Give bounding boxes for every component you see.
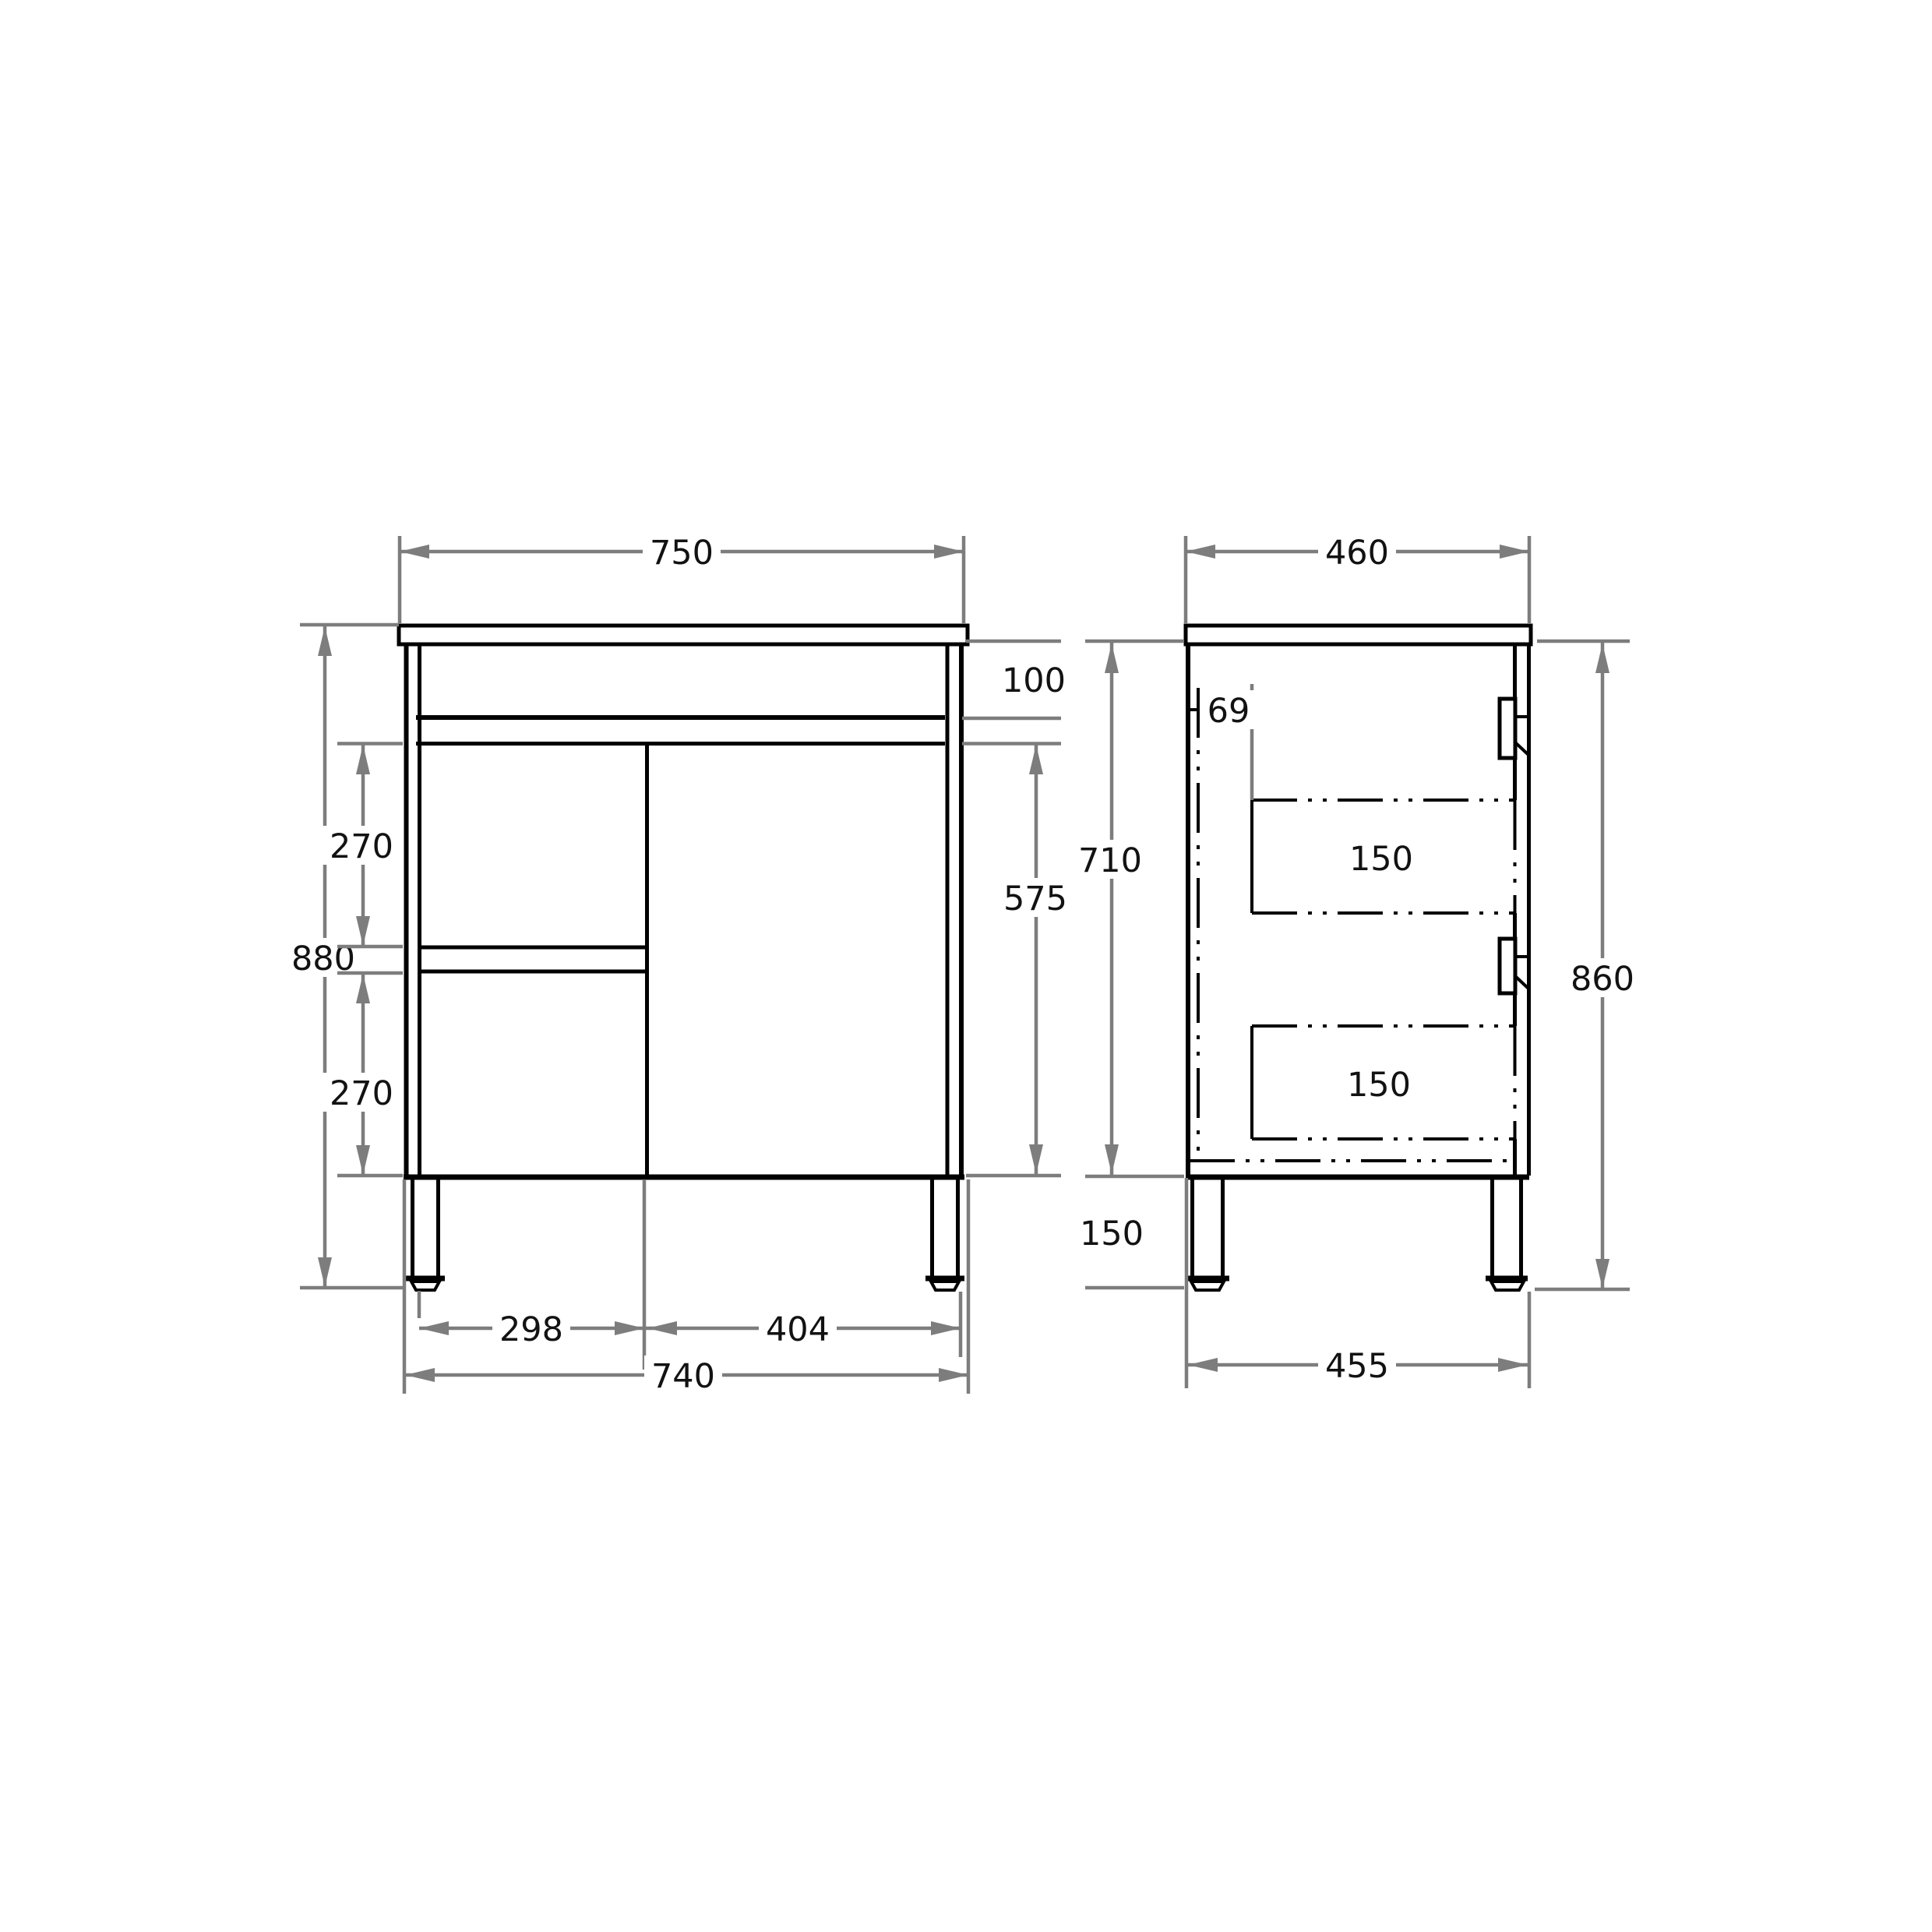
dim-label-upper-drawer-depth: 150 (1349, 840, 1413, 879)
arrow-down (1029, 1144, 1043, 1174)
arrow-right (615, 1321, 644, 1335)
svg-text:100: 100 (1002, 661, 1066, 700)
arrow-right (1500, 545, 1529, 559)
arrow-left (1186, 545, 1215, 559)
svg-text:270: 270 (330, 1074, 393, 1113)
svg-text:298: 298 (499, 1310, 563, 1349)
side-right-leg (1486, 1179, 1528, 1290)
svg-text:460: 460 (1325, 534, 1389, 573)
dim-label-lower-drawer-depth: 150 (1347, 1066, 1411, 1105)
arrow-up (1029, 745, 1043, 774)
svg-text:455: 455 (1325, 1347, 1389, 1386)
dim-label-front-drawer-bank-width: 298 (492, 1309, 570, 1349)
lower-hinge (1500, 939, 1528, 993)
front-view-outline (399, 626, 968, 1290)
right-foot (931, 1282, 959, 1290)
side-countertop (1186, 626, 1531, 644)
side-view: 460 69 710 150 150 (1071, 532, 1641, 1388)
arrow-down (356, 1145, 370, 1175)
dim-label-front-door-width: 404 (759, 1309, 837, 1349)
svg-text:575: 575 (1003, 880, 1067, 918)
svg-text:270: 270 (330, 827, 393, 866)
arrow-up (1595, 643, 1609, 673)
arrow-left (647, 1321, 677, 1335)
arrow-right (1498, 1358, 1528, 1372)
dim-label-front-door-height: 575 (996, 878, 1074, 918)
front-right-leg (925, 1179, 964, 1290)
svg-text:150: 150 (1347, 1066, 1411, 1105)
front-left-leg (406, 1179, 445, 1290)
svg-text:740: 740 (651, 1357, 715, 1396)
dim-label-side-top-depth: 460 (1318, 532, 1396, 573)
svg-text:150: 150 (1349, 840, 1413, 879)
dim-label-front-carcass-width: 740 (644, 1356, 722, 1396)
svg-text:710: 710 (1078, 841, 1142, 880)
front-view-dimensions: 750 880 270 (284, 532, 1074, 1396)
left-foot (411, 1282, 439, 1290)
dim-label-front-top-width: 750 (643, 532, 721, 573)
arrow-up (318, 626, 332, 656)
arrow-down (1105, 1144, 1119, 1174)
dim-label-side-back-offset: 69 (1203, 690, 1254, 731)
technical-drawing-page: 750 880 270 (0, 0, 1932, 1932)
front-countertop (399, 626, 968, 644)
side-left-foot (1191, 1282, 1224, 1290)
drawing-canvas: 750 880 270 (0, 0, 1932, 1932)
front-view: 750 880 270 (284, 532, 1074, 1396)
svg-text:150: 150 (1080, 1215, 1144, 1253)
arrow-down (1595, 1259, 1609, 1289)
dim-label-side-overall-height: 860 (1564, 958, 1641, 999)
side-right-foot (1491, 1282, 1524, 1290)
arrow-left (419, 1321, 449, 1335)
arrow-right (939, 1368, 968, 1382)
svg-text:69: 69 (1207, 692, 1250, 731)
dim-label-side-base-depth: 455 (1318, 1345, 1396, 1386)
side-left-leg (1186, 1179, 1229, 1290)
dim-label-front-lower-drawer: 270 (323, 1073, 400, 1113)
dim-label-side-leg-height: 150 (1080, 1215, 1144, 1253)
arrow-right (931, 1321, 961, 1335)
arrow-left (405, 1368, 435, 1382)
svg-text:750: 750 (650, 534, 714, 573)
svg-text:404: 404 (766, 1310, 830, 1349)
arrow-down (318, 1257, 332, 1287)
arrow-up (1105, 643, 1119, 673)
arrow-left (1188, 1358, 1218, 1372)
dim-label-front-apron-height: 100 (1002, 661, 1066, 700)
arrow-up (356, 974, 370, 1003)
arrow-left (400, 545, 429, 559)
side-view-dimensions: 460 69 710 150 150 (1071, 532, 1641, 1388)
arrow-up (356, 745, 370, 774)
dim-label-side-carcass-height: 710 (1071, 840, 1149, 880)
dim-label-front-upper-drawer: 270 (323, 826, 400, 866)
upper-hinge (1500, 699, 1528, 758)
svg-text:860: 860 (1571, 960, 1634, 999)
arrow-right (934, 545, 964, 559)
